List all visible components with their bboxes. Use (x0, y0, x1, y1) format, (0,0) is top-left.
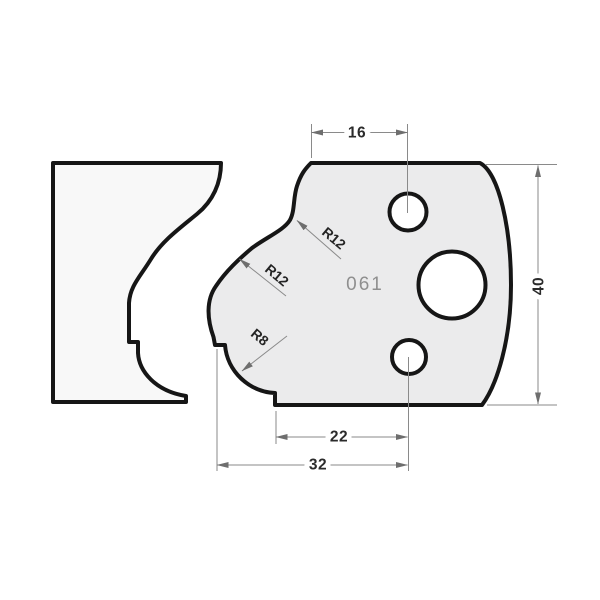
dim-40-label: 40 (531, 277, 548, 295)
workpiece-profile-shape (53, 163, 221, 402)
dim-22-label: 22 (330, 429, 348, 446)
dimension-bottom-inner-width: 22 (276, 411, 408, 446)
dim-16-label: 16 (348, 125, 366, 142)
technical-drawing-canvas: 16 40 22 32 R12 R12 (0, 0, 600, 600)
profile-number: 061 (346, 274, 384, 295)
drawing-page: 16 40 22 32 R12 R12 (0, 0, 600, 600)
dim-32-label: 32 (309, 457, 327, 474)
center-bore-hole (419, 252, 486, 319)
dimension-top-width: 16 (312, 124, 408, 158)
